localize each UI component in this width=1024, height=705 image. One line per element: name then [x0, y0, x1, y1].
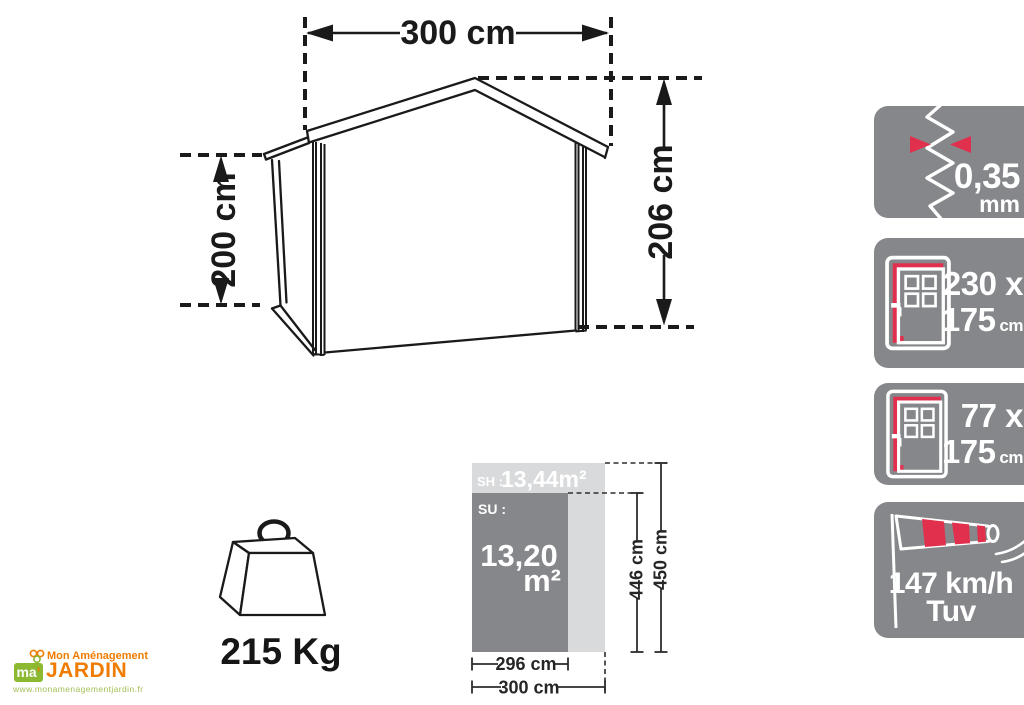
brand-name: JARDIN	[46, 659, 127, 683]
monogram-leaf: ’	[37, 664, 41, 680]
floor-outer-width-label: 300 cm	[498, 678, 559, 698]
door-pane-icon	[922, 409, 934, 421]
dim-width-label: 300 cm	[400, 14, 515, 52]
floor-inner-width-label: 296 cm	[495, 654, 556, 674]
roof-left-cap	[264, 154, 266, 160]
shed-elevation-drawing: 300 cm 200 cm 206 cm	[180, 14, 702, 356]
wind-speed-value: 147 km/h	[874, 570, 1024, 598]
double-door-size-value2: 175	[942, 301, 996, 338]
badge-double-door-size: 230 x 175cm	[874, 238, 1024, 368]
double-door-size-line1: 230 x	[942, 266, 1023, 302]
door-pane-icon	[923, 294, 935, 306]
dim-width: 300 cm	[306, 14, 609, 52]
door-pane-icon	[905, 409, 917, 421]
floor-sh-value: 13,44m²	[501, 466, 587, 492]
roof-inner-edge	[309, 90, 605, 157]
guide-lines	[180, 17, 702, 327]
right-corner-post	[576, 143, 587, 333]
wind-swoosh-icon	[996, 536, 1024, 554]
left-corner-post	[313, 141, 325, 356]
monogram-letters: ma	[16, 664, 36, 680]
single-door-size-line1: 77 x	[942, 398, 1023, 434]
door-pane-icon	[905, 425, 917, 437]
product-spec-sheet: 300 cm 200 cm 206 cm 215 K	[0, 0, 1024, 705]
dim-wall-height: 200 cm	[205, 156, 243, 305]
badge-single-door-size: 77 x 175cm	[874, 383, 1024, 485]
weight-label: 215 Kg	[220, 631, 341, 672]
roof-right-cap	[605, 147, 608, 158]
door-handle-icon	[891, 303, 900, 308]
dim-wall-height-label: 200 cm	[205, 172, 243, 287]
double-door-size-unit: cm	[999, 316, 1023, 335]
dim-ridge-height: 206 cm	[642, 79, 680, 326]
clover-icon	[29, 649, 45, 664]
weight-icon	[220, 522, 325, 616]
front-wall-bottom	[325, 331, 576, 353]
wind-cert-label: Tuv	[874, 598, 1024, 626]
side-wall	[272, 160, 315, 356]
right-arrow-icon	[950, 136, 971, 153]
badge-wall-thickness: 0,35 mm	[874, 106, 1024, 218]
door-pane-icon	[922, 425, 934, 437]
brand-url: www.monamenagementjardin.fr	[13, 684, 143, 694]
floor-su-unit: m²	[523, 563, 561, 598]
door-pane-icon	[906, 294, 918, 306]
door-pane-icon	[906, 276, 918, 288]
floor-su-label: SU :	[478, 501, 506, 517]
door-icon	[886, 389, 948, 479]
brand-monogram: ma’	[14, 663, 43, 682]
shed-outline	[264, 78, 608, 356]
floor-sh-label: SH :	[477, 474, 503, 489]
single-door-size-value2: 175	[942, 433, 996, 470]
badge-wind-resistance: 147 km/h Tuv	[874, 502, 1024, 638]
weight-front-face	[240, 553, 325, 615]
wall-thickness-value: 0,35	[954, 160, 1020, 193]
floor-outer-length-label: 450 cm	[651, 529, 671, 590]
line-art-canvas: 300 cm 200 cm 206 cm 215 K	[0, 0, 1024, 705]
floor-inner-length-label: 446 cm	[627, 539, 647, 600]
wall-thickness-unit: mm	[954, 193, 1020, 216]
floor-plan: SH : 13,44m² SU : 13,20 m² 446 cm 450 cm	[472, 463, 671, 698]
single-door-size-unit: cm	[999, 448, 1023, 467]
dim-ridge-height-label: 206 cm	[642, 144, 680, 259]
door-pane-icon	[923, 276, 935, 288]
brand-logo: Mon Aménagement ma’ JARDIN www.monamenag…	[12, 646, 152, 698]
door-handle-icon	[892, 434, 901, 438]
